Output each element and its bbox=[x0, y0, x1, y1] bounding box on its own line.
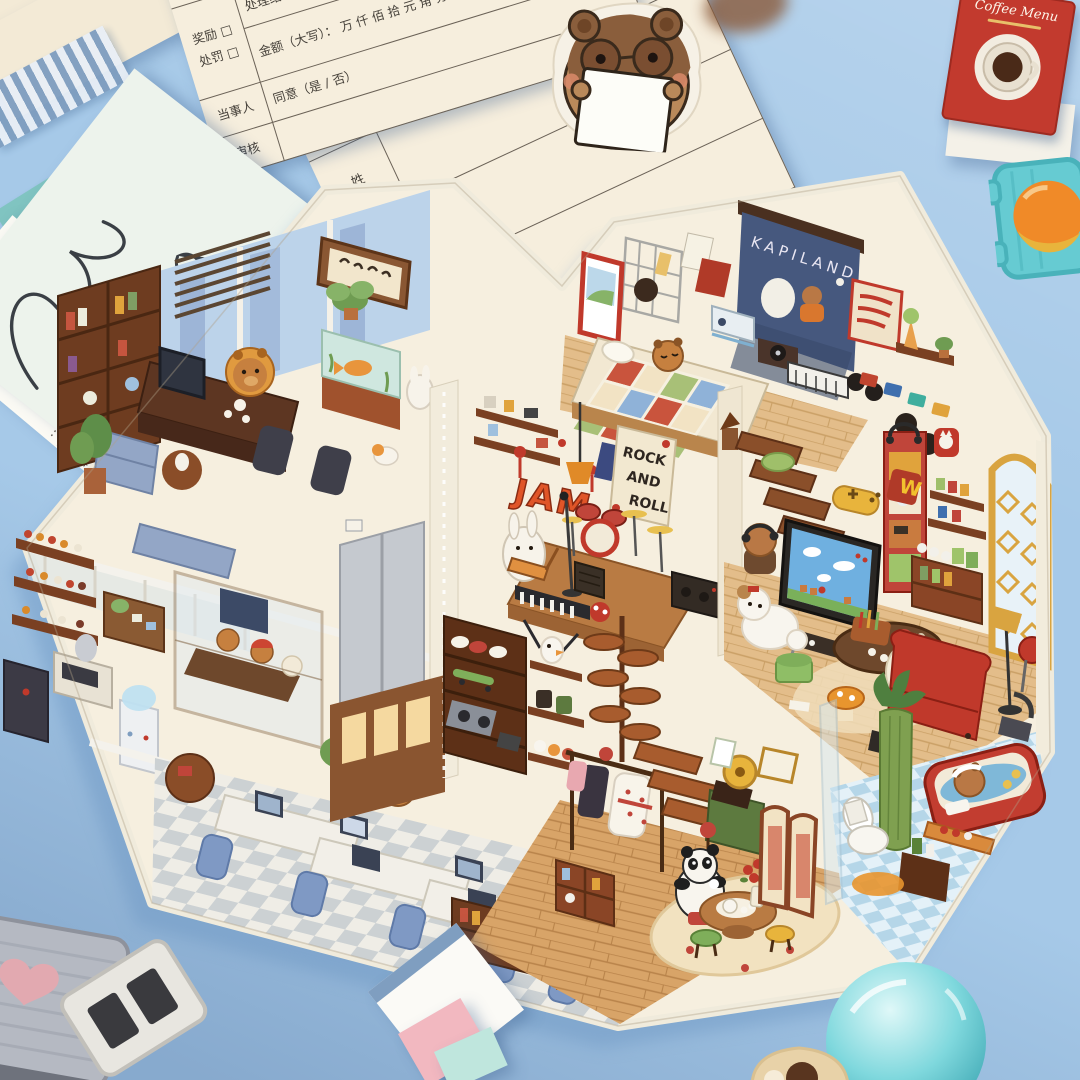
coffee-menu-book: Coffee Menu bbox=[941, 0, 1077, 136]
round-table bbox=[166, 754, 214, 802]
small-red-lamp bbox=[700, 822, 716, 838]
teal-basket-orange bbox=[985, 138, 1080, 304]
bedroom-sleeping-capybara bbox=[653, 338, 683, 372]
capybara-red-cap bbox=[251, 639, 273, 663]
coffee-cup-photo bbox=[952, 22, 1063, 115]
capybara-note-sticker bbox=[538, 0, 718, 155]
stair-cushion bbox=[762, 453, 794, 471]
held-note-paper bbox=[575, 68, 674, 154]
green-curtain bbox=[880, 709, 912, 850]
flower-vase bbox=[175, 453, 189, 471]
folding-screen bbox=[760, 807, 816, 916]
bottle-art bbox=[711, 738, 736, 768]
meeting-capybara bbox=[217, 629, 239, 651]
screen-ghost-capybara bbox=[761, 278, 795, 318]
landscape-window-frame bbox=[580, 254, 622, 342]
green-bucket bbox=[776, 653, 812, 682]
polka-dot-dress bbox=[607, 772, 652, 838]
stairs-capybara-headphones bbox=[742, 524, 779, 574]
capybara-diorama: KAPILAND bbox=[0, 0, 1080, 1080]
partial-capybara-sticker bbox=[744, 1044, 854, 1080]
elevator-sign bbox=[346, 520, 362, 531]
display-wall-unit bbox=[444, 616, 526, 774]
boss-capybara bbox=[226, 348, 274, 396]
bath-rug bbox=[852, 872, 904, 896]
red-wall-poster bbox=[849, 280, 902, 350]
cat-face-bag bbox=[934, 428, 959, 457]
framed-picture bbox=[758, 748, 797, 782]
photo-scene: 姓 请假事 要求 日期: 年 姓名 事由: 奖励 □处罚 □ 处理结果: 开单人… bbox=[0, 0, 1080, 1080]
coffee-machine bbox=[4, 660, 48, 742]
